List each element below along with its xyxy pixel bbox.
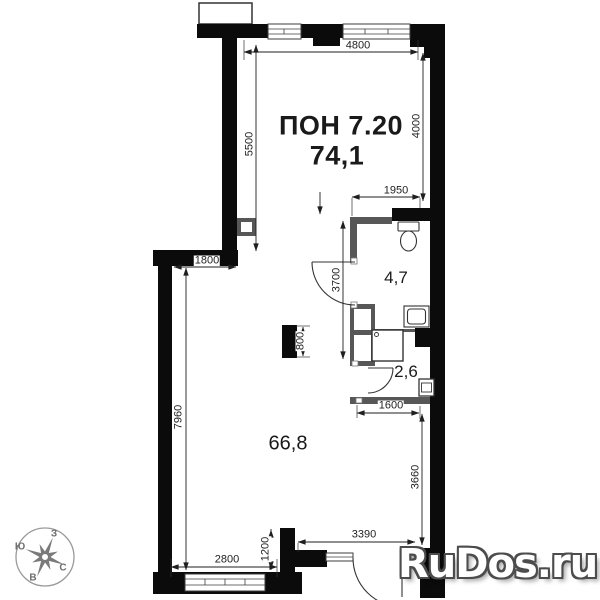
dim-wc-top: 1950 xyxy=(383,186,409,197)
compass-east-label: В xyxy=(29,573,36,584)
unit-label: ПОН 7.20 xyxy=(279,111,403,142)
dim-entry: 3390 xyxy=(351,530,377,541)
dim-column: 800 xyxy=(296,331,307,351)
dim-wc-side: 3700 xyxy=(332,267,343,293)
dim-right-lower: 3660 xyxy=(411,464,422,490)
compass-west-label: З xyxy=(51,529,57,540)
site-watermark: RuDos.ru xyxy=(398,542,600,586)
window-top-right xyxy=(343,24,410,39)
dim-ledge: 1800 xyxy=(194,256,220,267)
entry-door xyxy=(353,558,402,600)
dim-shower-bottom: 1600 xyxy=(378,401,404,412)
windows xyxy=(185,24,410,591)
dim-left-upper: 5500 xyxy=(245,131,256,157)
sink xyxy=(404,306,429,327)
balcony-outline xyxy=(199,3,252,24)
room-area-wc: 4,7 xyxy=(384,268,408,288)
compass-rose xyxy=(16,528,74,586)
total-area-label: 74,1 xyxy=(310,141,365,172)
water-heater xyxy=(419,379,434,396)
shower-room-door xyxy=(368,368,393,393)
room-area-shower: 2,6 xyxy=(394,362,418,382)
shower-tray xyxy=(372,330,403,361)
floor-plan-drawing xyxy=(0,0,600,600)
window-top-left xyxy=(268,24,301,39)
room-area-main: 66,8 xyxy=(269,433,308,456)
dim-bottom: 2800 xyxy=(214,555,240,566)
entry-sidelight xyxy=(326,553,353,561)
compass-north-label: С xyxy=(59,563,66,574)
dim-top: 4800 xyxy=(345,41,371,52)
dim-right-upper: 4000 xyxy=(412,113,423,139)
dim-left-lower: 7960 xyxy=(174,404,185,430)
compass-south-label: Ю xyxy=(15,542,25,553)
window-bottom xyxy=(185,574,265,591)
dim-notch: 1200 xyxy=(261,536,272,562)
toilet xyxy=(398,222,419,251)
floor-plan-page: { "plan": { "unit_label": "ПОН 7.20", "t… xyxy=(0,0,600,600)
